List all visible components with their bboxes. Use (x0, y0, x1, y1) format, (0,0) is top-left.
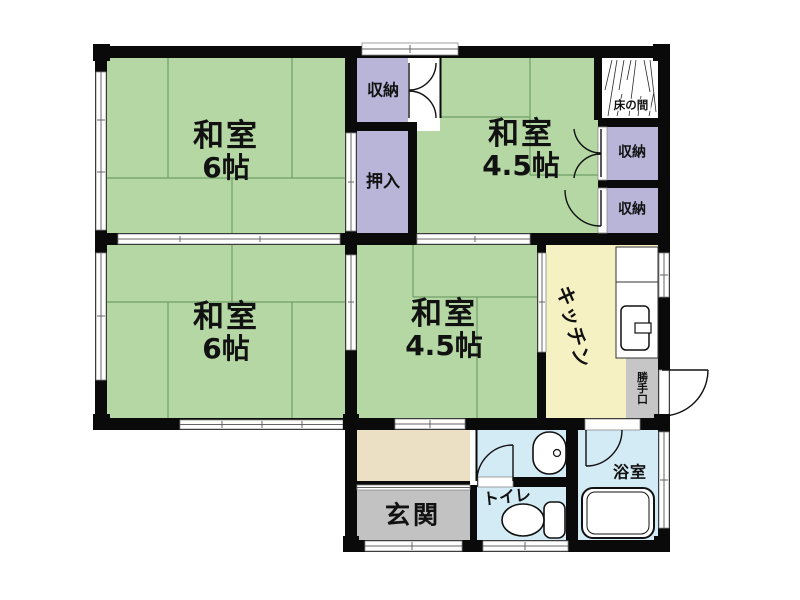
wall-tokonoma-bottom (598, 118, 658, 127)
wall-genkan-right (470, 485, 477, 541)
room-size: 6帖 (193, 335, 259, 365)
washbasin-drain (554, 450, 561, 457)
bathtub (582, 488, 654, 538)
label-washitsu-45-mid: 和室 4.5帖 (405, 298, 483, 362)
room-size: 4.5帖 (405, 332, 483, 362)
label-shuno-right-upper: 収納 (618, 145, 646, 160)
hallway-floor (357, 430, 470, 481)
kitchen-faucet (635, 323, 651, 333)
label-katteguchi: 勝手口 (637, 372, 648, 405)
label-genkan: 玄関 (385, 502, 441, 529)
label-oshiire: 押入 (366, 173, 400, 191)
label-washitsu-6-mid: 和室 6帖 (193, 301, 259, 365)
room-name: 和室 (405, 298, 483, 331)
wall-shuno-divider (598, 180, 658, 188)
doorway-katteguchi (659, 370, 669, 417)
room-name: 和室 (193, 301, 259, 334)
double-door-shuno-top (409, 63, 436, 118)
room-name: 和室 (482, 118, 560, 151)
room-size: 6帖 (193, 154, 259, 184)
doorway-bathroom (585, 419, 640, 430)
wall-tokonoma-left (594, 58, 602, 120)
doorway-toilet (478, 477, 513, 487)
wall-bathroom-left (566, 418, 578, 540)
floor-plan: 和室 6帖 和室 4.5帖 和室 6帖 和室 4.5帖 収納 押入 床の間 収納… (0, 0, 800, 600)
label-bathroom: 浴室 (613, 463, 647, 480)
room-name: 和室 (193, 120, 259, 153)
wall-closet-right (408, 129, 417, 233)
label-shuno-top: 収納 (367, 81, 399, 98)
wall-lower-left (345, 418, 357, 552)
label-washitsu-45-top: 和室 4.5帖 (482, 118, 560, 182)
toilet-bowl (502, 504, 544, 536)
label-shuno-right-lower: 収納 (618, 202, 646, 217)
closet-door-jamb-line (440, 58, 442, 118)
label-tokonoma: 床の間 (612, 99, 651, 111)
room-size: 4.5帖 (482, 152, 560, 182)
label-washitsu-6-top: 和室 6帖 (193, 120, 259, 184)
toilet-tank (544, 502, 565, 538)
